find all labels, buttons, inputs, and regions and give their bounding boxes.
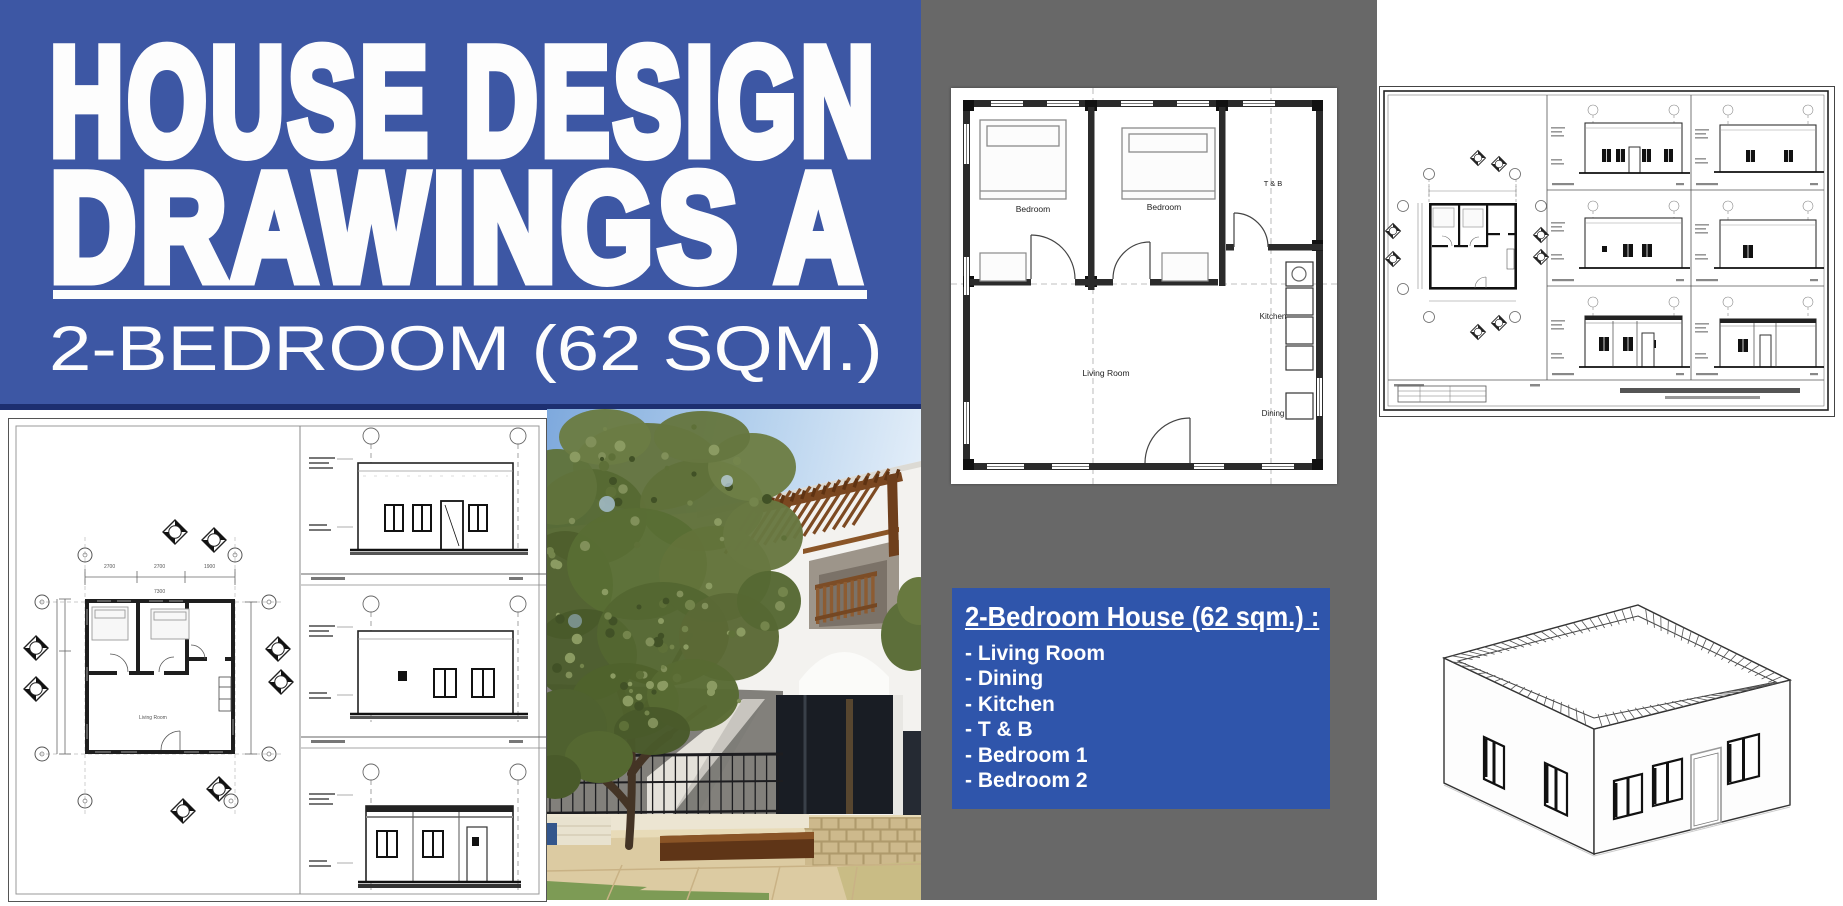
svg-text:Bedroom: Bedroom — [1147, 202, 1182, 212]
svg-text:2700: 2700 — [104, 564, 115, 570]
svg-text:Kitchen: Kitchen — [1260, 312, 1287, 321]
svg-text:Living Room: Living Room — [1082, 368, 1129, 378]
svg-text:Dining: Dining — [1262, 409, 1285, 418]
svg-text:1900: 1900 — [204, 564, 215, 570]
svg-text:2700: 2700 — [154, 564, 165, 570]
svg-text:7300: 7300 — [154, 589, 165, 595]
svg-text:Living Room: Living Room — [139, 715, 167, 721]
svg-text:Bedroom: Bedroom — [1016, 204, 1051, 214]
svg-text:T & B: T & B — [1264, 179, 1283, 188]
